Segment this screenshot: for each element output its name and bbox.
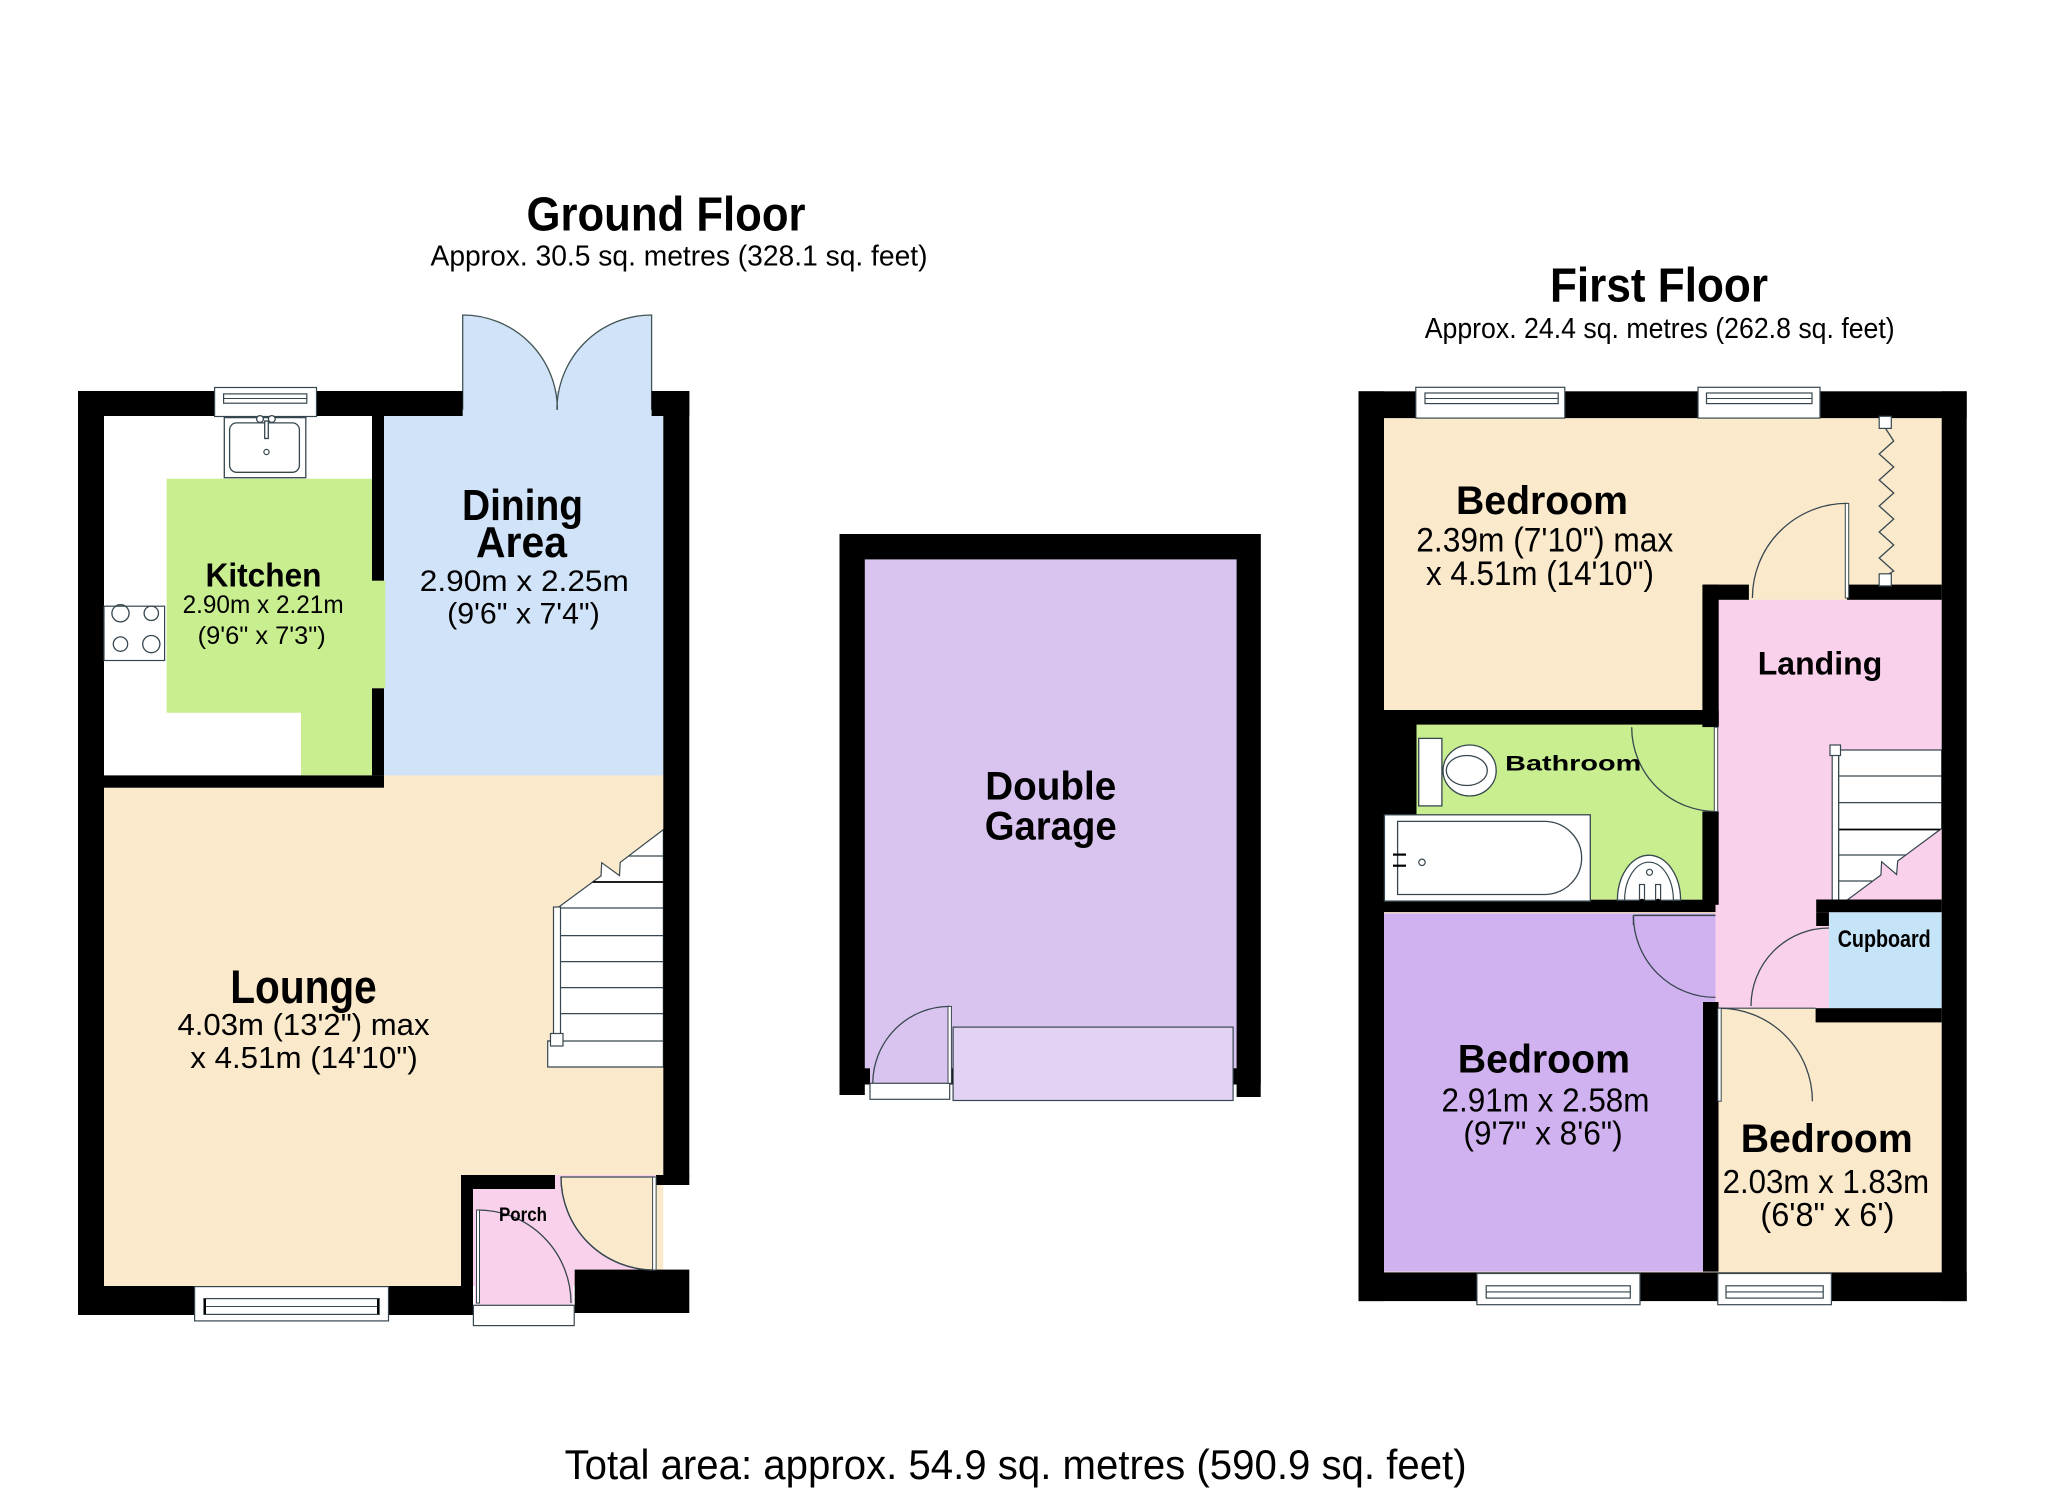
svg-text:Bedroom: Bedroom	[1458, 1038, 1630, 1082]
svg-text:Lounge: Lounge	[230, 960, 377, 1013]
svg-text:Cupboard: Cupboard	[1838, 926, 1931, 953]
svg-text:(9'7" x 8'6"): (9'7" x 8'6")	[1463, 1114, 1622, 1151]
svg-text:Bathroom: Bathroom	[1505, 752, 1641, 776]
svg-text:(9'6" x 7'3"): (9'6" x 7'3")	[198, 622, 326, 650]
svg-text:Porch: Porch	[499, 1205, 547, 1226]
svg-text:Approx. 24.4 sq. metres (262.8: Approx. 24.4 sq. metres (262.8 sq. feet)	[1425, 313, 1895, 345]
svg-text:4.03m (13'2") max: 4.03m (13'2") max	[178, 1007, 430, 1042]
svg-text:Total area: approx. 54.9 sq. m: Total area: approx. 54.9 sq. metres (590…	[565, 1441, 1467, 1488]
svg-text:Landing: Landing	[1758, 646, 1883, 682]
svg-text:2.03m x 1.83m: 2.03m x 1.83m	[1723, 1163, 1930, 1200]
svg-text:Kitchen: Kitchen	[206, 557, 322, 594]
svg-text:2.90m x 2.21m: 2.90m x 2.21m	[183, 591, 344, 619]
svg-text:2.91m x 2.58m: 2.91m x 2.58m	[1442, 1081, 1650, 1118]
svg-text:2.39m (7'10") max: 2.39m (7'10") max	[1416, 522, 1673, 560]
svg-text:Garage: Garage	[985, 804, 1117, 848]
svg-text:Double: Double	[985, 765, 1116, 809]
svg-text:Ground Floor: Ground Floor	[527, 189, 806, 242]
svg-text:(6'8" x 6'): (6'8" x 6')	[1760, 1196, 1894, 1233]
svg-text:Bedroom: Bedroom	[1741, 1117, 1913, 1161]
svg-text:Bedroom: Bedroom	[1456, 479, 1628, 523]
svg-text:2.90m x 2.25m: 2.90m x 2.25m	[420, 565, 629, 598]
svg-text:x 4.51m (14'10"): x 4.51m (14'10")	[1426, 555, 1654, 593]
svg-text:(9'6" x 7'4"): (9'6" x 7'4")	[447, 598, 600, 631]
svg-text:Area: Area	[476, 518, 567, 567]
svg-text:Approx. 30.5 sq. metres (328.1: Approx. 30.5 sq. metres (328.1 sq. feet)	[431, 240, 928, 272]
svg-text:x 4.51m (14'10"): x 4.51m (14'10")	[190, 1040, 418, 1075]
svg-text:First Floor: First Floor	[1550, 260, 1768, 313]
